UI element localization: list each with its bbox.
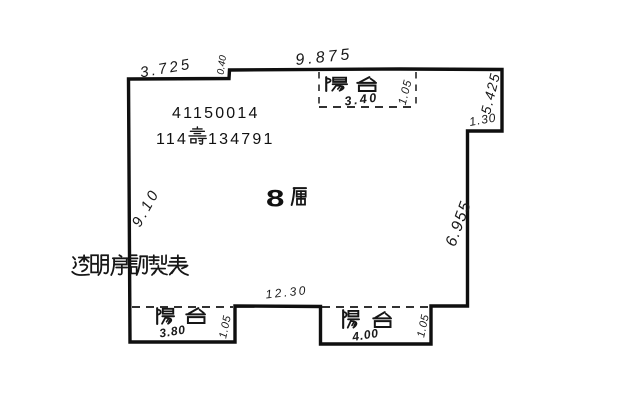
svg-text:134791: 134791 [208, 131, 275, 148]
svg-text:41150014: 41150014 [172, 105, 260, 122]
svg-text:8: 8 [266, 186, 284, 213]
svg-text:114: 114 [156, 131, 188, 148]
